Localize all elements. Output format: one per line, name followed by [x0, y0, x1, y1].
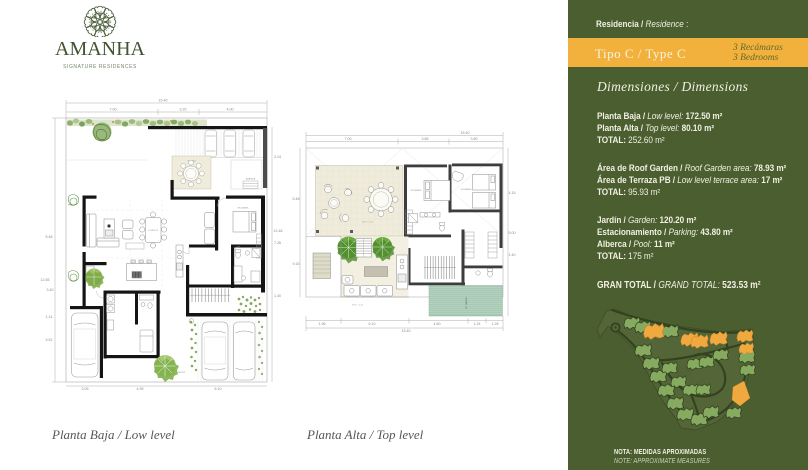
svg-text:4.15: 4.15 — [509, 191, 516, 195]
svg-text:6.10: 6.10 — [215, 387, 222, 390]
svg-text:5.46: 5.46 — [293, 197, 300, 201]
svg-text:9.15: 9.15 — [293, 262, 300, 266]
svg-text:3.40: 3.40 — [47, 288, 54, 292]
svg-text:15.40: 15.40 — [159, 99, 168, 103]
svg-text:7.00: 7.00 — [110, 108, 117, 112]
svg-text:RECAMARA: RECAMARA — [411, 189, 422, 192]
svg-text:COMEDOR: COMEDOR — [148, 230, 159, 232]
svg-text:6.10: 6.10 — [369, 322, 376, 326]
svg-text:7.00: 7.00 — [345, 137, 352, 141]
svg-text:3.85: 3.85 — [422, 137, 429, 141]
svg-text:4.00: 4.00 — [227, 108, 234, 112]
svg-text:1.14: 1.14 — [46, 315, 53, 319]
svg-text:15.40: 15.40 — [461, 131, 470, 135]
svg-text:4.95: 4.95 — [137, 387, 144, 390]
svg-text:3.51: 3.51 — [46, 338, 53, 342]
svg-text:RECAMARA: RECAMARA — [238, 207, 249, 210]
svg-text:12.48: 12.48 — [274, 229, 283, 233]
svg-text:4.60: 4.60 — [434, 322, 441, 326]
svg-text:RF GARDEN: RF GARDEN — [465, 297, 468, 309]
svg-text:1.40: 1.40 — [274, 294, 281, 298]
svg-text:1.96: 1.96 — [319, 322, 326, 326]
svg-text:5.00: 5.00 — [509, 231, 516, 235]
svg-text:N.P.T + 5.90: N.P.T + 5.90 — [362, 222, 374, 224]
svg-text:3.05: 3.05 — [82, 387, 89, 390]
svg-text:N.P.T + 3.25: N.P.T + 3.25 — [352, 305, 364, 307]
svg-text:ALBERCA: ALBERCA — [246, 178, 256, 181]
svg-text:JARDIN: JARDIN — [178, 371, 186, 374]
svg-text:1.40: 1.40 — [509, 253, 516, 257]
svg-text:12.65: 12.65 — [41, 278, 50, 282]
svg-text:3.24: 3.24 — [274, 155, 281, 159]
svg-text:1.28: 1.28 — [492, 322, 499, 326]
svg-text:5.48: 5.48 — [46, 235, 53, 239]
svg-text:15.40: 15.40 — [402, 329, 411, 333]
svg-text:1.24: 1.24 — [474, 322, 481, 326]
svg-text:RECAMARA: RECAMARA — [461, 188, 472, 191]
svg-text:3.80: 3.80 — [471, 137, 478, 141]
svg-text:7.26: 7.26 — [274, 241, 281, 245]
svg-text:3.20: 3.20 — [180, 108, 187, 112]
